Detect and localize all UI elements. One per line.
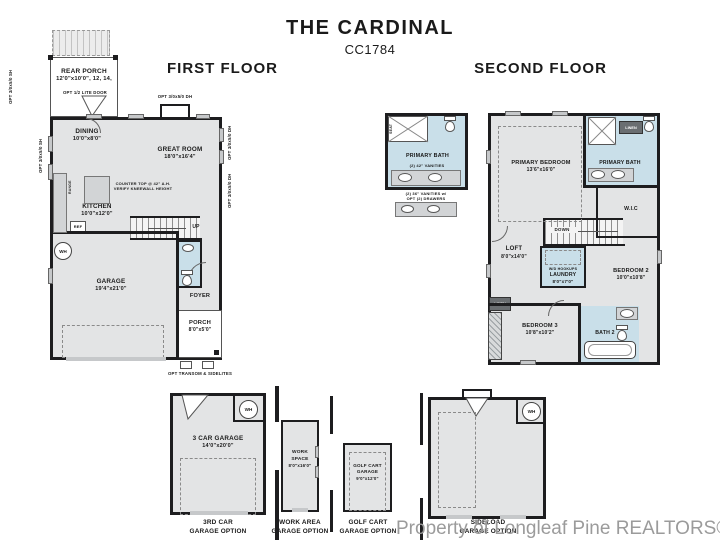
laundry-dims: 8'0"x7'0"	[541, 279, 585, 285]
plan-number: CC1784	[210, 42, 530, 58]
primary-bath-option-label: PRIMARY BATH	[395, 153, 460, 160]
note-line: VERIFY KNEEWALL HEIGHT	[112, 186, 174, 191]
window-label-left-wall: OPT 3/0x5/0 SH	[38, 130, 43, 182]
vanities-36-note: (2) 36" VANITIES w/ OPT (2) DRAWERS	[390, 191, 462, 201]
window	[219, 128, 224, 142]
wall	[516, 422, 546, 424]
stairs-wall	[545, 244, 625, 246]
linen-closet: LINEN	[619, 121, 643, 134]
watermark: Property of Longleaf Pine REALTORS® 2025	[396, 518, 720, 540]
down-arrow-line	[578, 231, 618, 232]
window	[520, 360, 536, 365]
porch-label: PORCH 8'0"x5'0"	[178, 320, 222, 333]
refrigerator-label: REF	[70, 224, 86, 229]
room-dims: 10'0"x8'0"	[56, 136, 118, 143]
loft-label: LOFT 8'0"x14'0"	[488, 246, 540, 260]
window	[128, 114, 144, 119]
window	[48, 268, 53, 284]
floorplan-sheet: THE CARDINAL CC1784 FIRST FLOOR SECOND F…	[0, 0, 720, 543]
garage-door-opening	[66, 357, 166, 361]
sink	[591, 170, 605, 179]
page-title: THE CARDINAL	[210, 16, 530, 41]
garage-door-dashed	[62, 325, 164, 358]
room-dims: 10'8"x10'2"	[505, 330, 575, 336]
context-wall	[275, 470, 279, 540]
toilet-bowl	[617, 330, 627, 341]
opt-door-label: OPT 1/2 LITE DOOR	[45, 90, 125, 95]
stairs-up-label: UP	[186, 224, 206, 230]
rear-porch-label: REAR PORCH 12'0"x10'0", 12, 14,	[28, 68, 140, 83]
deck-hatch	[52, 30, 110, 56]
context-wall	[420, 393, 423, 445]
toilet-bowl	[644, 121, 654, 132]
sink	[611, 170, 625, 179]
window	[657, 250, 662, 264]
room-dims: 8'0"x16'0"	[281, 463, 319, 469]
water-heater-ff: WH	[54, 242, 72, 260]
room-dims: 10'0"x12'0"	[66, 211, 128, 218]
work-space-label: WORK SPACE 8'0"x16'0"	[281, 450, 319, 470]
window-label-right-wall-2: OPT 3/0x5/0 DH	[227, 168, 232, 214]
room-dims: 14'0"x20'0"	[178, 443, 258, 450]
kitchen-counter	[53, 173, 67, 233]
front-window-bump	[160, 104, 190, 119]
bathtub-inner	[588, 344, 632, 356]
shower-x-icon	[388, 116, 428, 142]
garage-door-dashed	[180, 458, 256, 515]
window	[486, 264, 491, 278]
transom-label: OPT TRANSOM & SIDELITES	[160, 371, 240, 376]
stairs-wall	[543, 218, 545, 246]
corner-post	[214, 350, 219, 355]
room-name: GARAGE	[75, 278, 147, 286]
window	[315, 466, 319, 478]
wh-label: WH	[528, 409, 536, 414]
room-dims: 8'0"x14'0"	[488, 254, 540, 260]
room-dims: 18'0"x16'4"	[140, 154, 220, 161]
closet-hatch	[488, 312, 502, 360]
wall	[596, 236, 660, 238]
room-name: GREAT ROOM	[140, 146, 220, 154]
garage-label: GARAGE 19'4"x21'0"	[75, 278, 147, 293]
stairs-wall	[130, 238, 202, 240]
caption-line: 3RD CAR	[173, 519, 263, 528]
transom-icon	[202, 361, 214, 369]
door-opening	[292, 508, 308, 512]
shower-x-icon	[588, 117, 616, 145]
window	[486, 150, 491, 164]
vanities-42-label: (2) 42" VANITIES	[392, 163, 462, 168]
room-name: 3 CAR GARAGE	[178, 435, 258, 443]
room-name: LOFT	[488, 246, 540, 254]
door-swing-icon	[182, 395, 208, 421]
foyer-label: FOYER	[178, 293, 222, 300]
room-dims: 19'4"x21'0"	[75, 286, 147, 293]
context-wall	[275, 386, 279, 422]
shower-seat-label: SEAT	[389, 118, 393, 140]
wall	[176, 231, 179, 360]
transom-icon	[180, 361, 192, 369]
washer-dryer-dashed	[545, 250, 581, 265]
wall	[488, 303, 580, 306]
wic-label: W.I.C	[606, 206, 656, 213]
window	[196, 114, 210, 119]
water-heater-3rd-car: WH	[239, 400, 258, 419]
sink	[182, 244, 194, 252]
room-name: KITCHEN	[66, 203, 128, 211]
wd-hookups-label: W/D HOOKUPS	[541, 267, 585, 271]
window-label-top: OPT 3/0x5/0 DH	[138, 94, 212, 99]
window	[48, 136, 53, 152]
sink	[427, 205, 440, 213]
bedroom3-label: BEDROOM 3 10'8"x10'2"	[505, 323, 575, 336]
wall	[578, 303, 581, 365]
room-dims: 8'0"x5'0"	[178, 327, 222, 333]
counter-note: COUNTER TOP @ 42" A.H. VERIFY KNEEWALL H…	[112, 181, 174, 191]
wall	[583, 113, 586, 188]
tray-ceiling-dashed	[498, 126, 582, 222]
first-floor-heading: FIRST FLOOR	[140, 60, 305, 79]
window	[315, 446, 319, 458]
room-name: PORCH	[178, 320, 222, 327]
wall	[233, 393, 235, 422]
kitchen-island	[84, 176, 110, 204]
sink	[398, 173, 412, 182]
bedroom2-label: BEDROOM 2 10'0"x10'8"	[600, 268, 662, 281]
garage-door-opening	[190, 511, 248, 515]
range-label: RANGE	[68, 177, 72, 197]
window-label-right-wall-1: OPT 3/0x5/0 DH	[227, 120, 232, 166]
linen-label: LINEN	[625, 126, 636, 130]
sink	[428, 173, 442, 182]
wall	[233, 420, 266, 422]
window	[505, 111, 521, 116]
room-name: BEDROOM 2	[600, 268, 662, 275]
great-room-label: GREAT ROOM 18'0"x16'4"	[140, 146, 220, 161]
toilet-bowl	[445, 121, 455, 132]
corner-post	[48, 55, 53, 60]
stairs-wall	[130, 216, 200, 218]
caption-line: GARAGE OPTION	[173, 528, 263, 537]
garage-a-label: 3 CAR GARAGE 14'0"x20'0"	[178, 435, 258, 450]
laundry-label: LAUNDRY	[541, 272, 585, 279]
sink	[620, 309, 634, 318]
garage-door-dashed	[349, 452, 386, 511]
stairs-down-label: DOWN	[548, 227, 576, 233]
toilet-bowl	[182, 275, 192, 286]
room-name: SPACE	[281, 457, 319, 464]
room-dims: 12'0"x10'0", 12, 14,	[28, 76, 140, 83]
room-name: REAR PORCH	[28, 68, 140, 76]
garage-door-dashed	[438, 412, 476, 508]
primary-bath-label: PRIMARY BATH	[585, 160, 655, 167]
kitchen-label: KITCHEN 10'0"x12'0"	[66, 203, 128, 218]
up-arrow-line	[148, 228, 186, 229]
context-wall	[330, 490, 333, 532]
window	[552, 111, 568, 116]
room-name: WORK	[281, 450, 319, 457]
second-floor-heading: SECOND FLOOR	[458, 60, 623, 79]
context-wall	[330, 396, 333, 434]
room-name: BEDROOM 3	[505, 323, 575, 330]
window-label-left-edge: OPT 3/0x5/0 SH	[8, 62, 13, 112]
corner-post	[113, 55, 118, 60]
water-heater-sideload: WH	[522, 402, 541, 421]
wall	[516, 397, 518, 424]
wall	[583, 185, 660, 188]
wh-label: WH	[245, 407, 253, 412]
note-line: OPT (2) DRAWERS	[390, 196, 462, 201]
sink	[401, 205, 414, 213]
wall	[50, 231, 179, 234]
garage-a-caption: 3RD CAR GARAGE OPTION	[173, 519, 263, 537]
wh-label: WH	[59, 249, 67, 254]
room-dims: 10'0"x10'8"	[600, 275, 662, 281]
window	[219, 150, 224, 164]
